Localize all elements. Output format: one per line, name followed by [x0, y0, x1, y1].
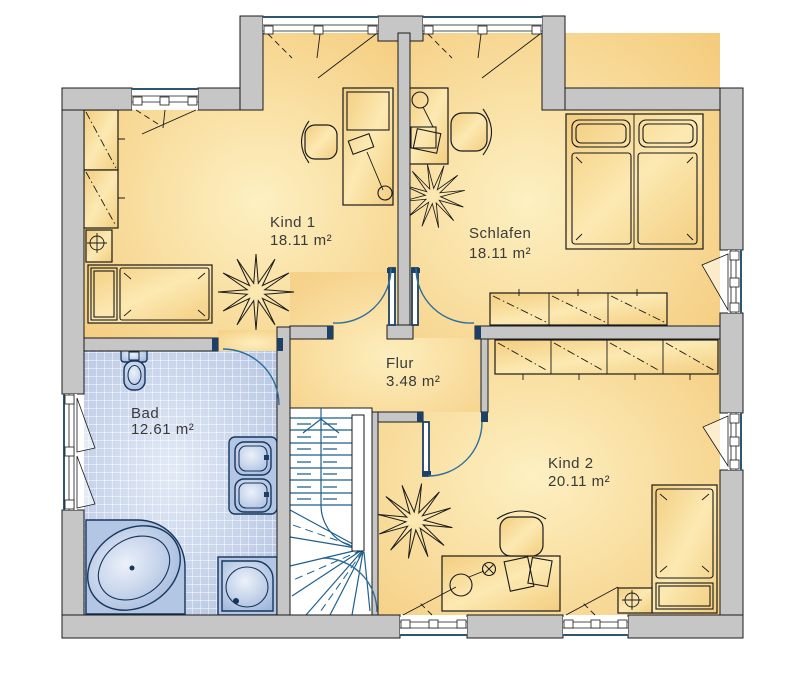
- desk: [343, 88, 393, 205]
- desk: [442, 556, 560, 611]
- radiator-icon: [618, 588, 652, 613]
- room-area: 18.11 m²: [469, 244, 531, 264]
- bed: [88, 265, 212, 323]
- room-area: 20.11 m²: [548, 473, 610, 491]
- radiator-icon: [86, 230, 112, 262]
- floor-plan: Kind 1 18.11 m² Schlafen 18.11 m² Flur 3…: [0, 0, 800, 676]
- bed: [652, 485, 717, 613]
- label-flur: Flur 3.48 m²: [386, 355, 440, 391]
- room-name: Flur: [386, 355, 440, 373]
- desk: [408, 88, 448, 164]
- label-kind1: Kind 1 18.11 m²: [270, 214, 332, 250]
- double-bed: [566, 114, 703, 249]
- room-name: Kind 1: [270, 214, 332, 232]
- label-bad: Bad 12.61 m²: [131, 406, 194, 438]
- label-kind2: Kind 2 20.11 m²: [548, 455, 610, 491]
- staircase: [290, 408, 372, 615]
- room-name: Bad: [131, 406, 194, 422]
- room-area: 18.11 m²: [270, 232, 332, 250]
- floor-plan-drawing: [0, 0, 800, 676]
- room-area: 3.48 m²: [386, 373, 440, 391]
- shower: [218, 557, 277, 615]
- room-area: 12.61 m²: [131, 422, 194, 438]
- toilet: [121, 349, 147, 390]
- double-washbasin: [229, 437, 277, 514]
- wardrobe: [495, 340, 718, 380]
- stair-railing: [352, 415, 364, 551]
- room-name: Schlafen: [469, 224, 531, 244]
- label-schlafen: Schlafen 18.11 m²: [469, 224, 531, 264]
- room-name: Kind 2: [548, 455, 610, 473]
- sideboard: [490, 289, 667, 325]
